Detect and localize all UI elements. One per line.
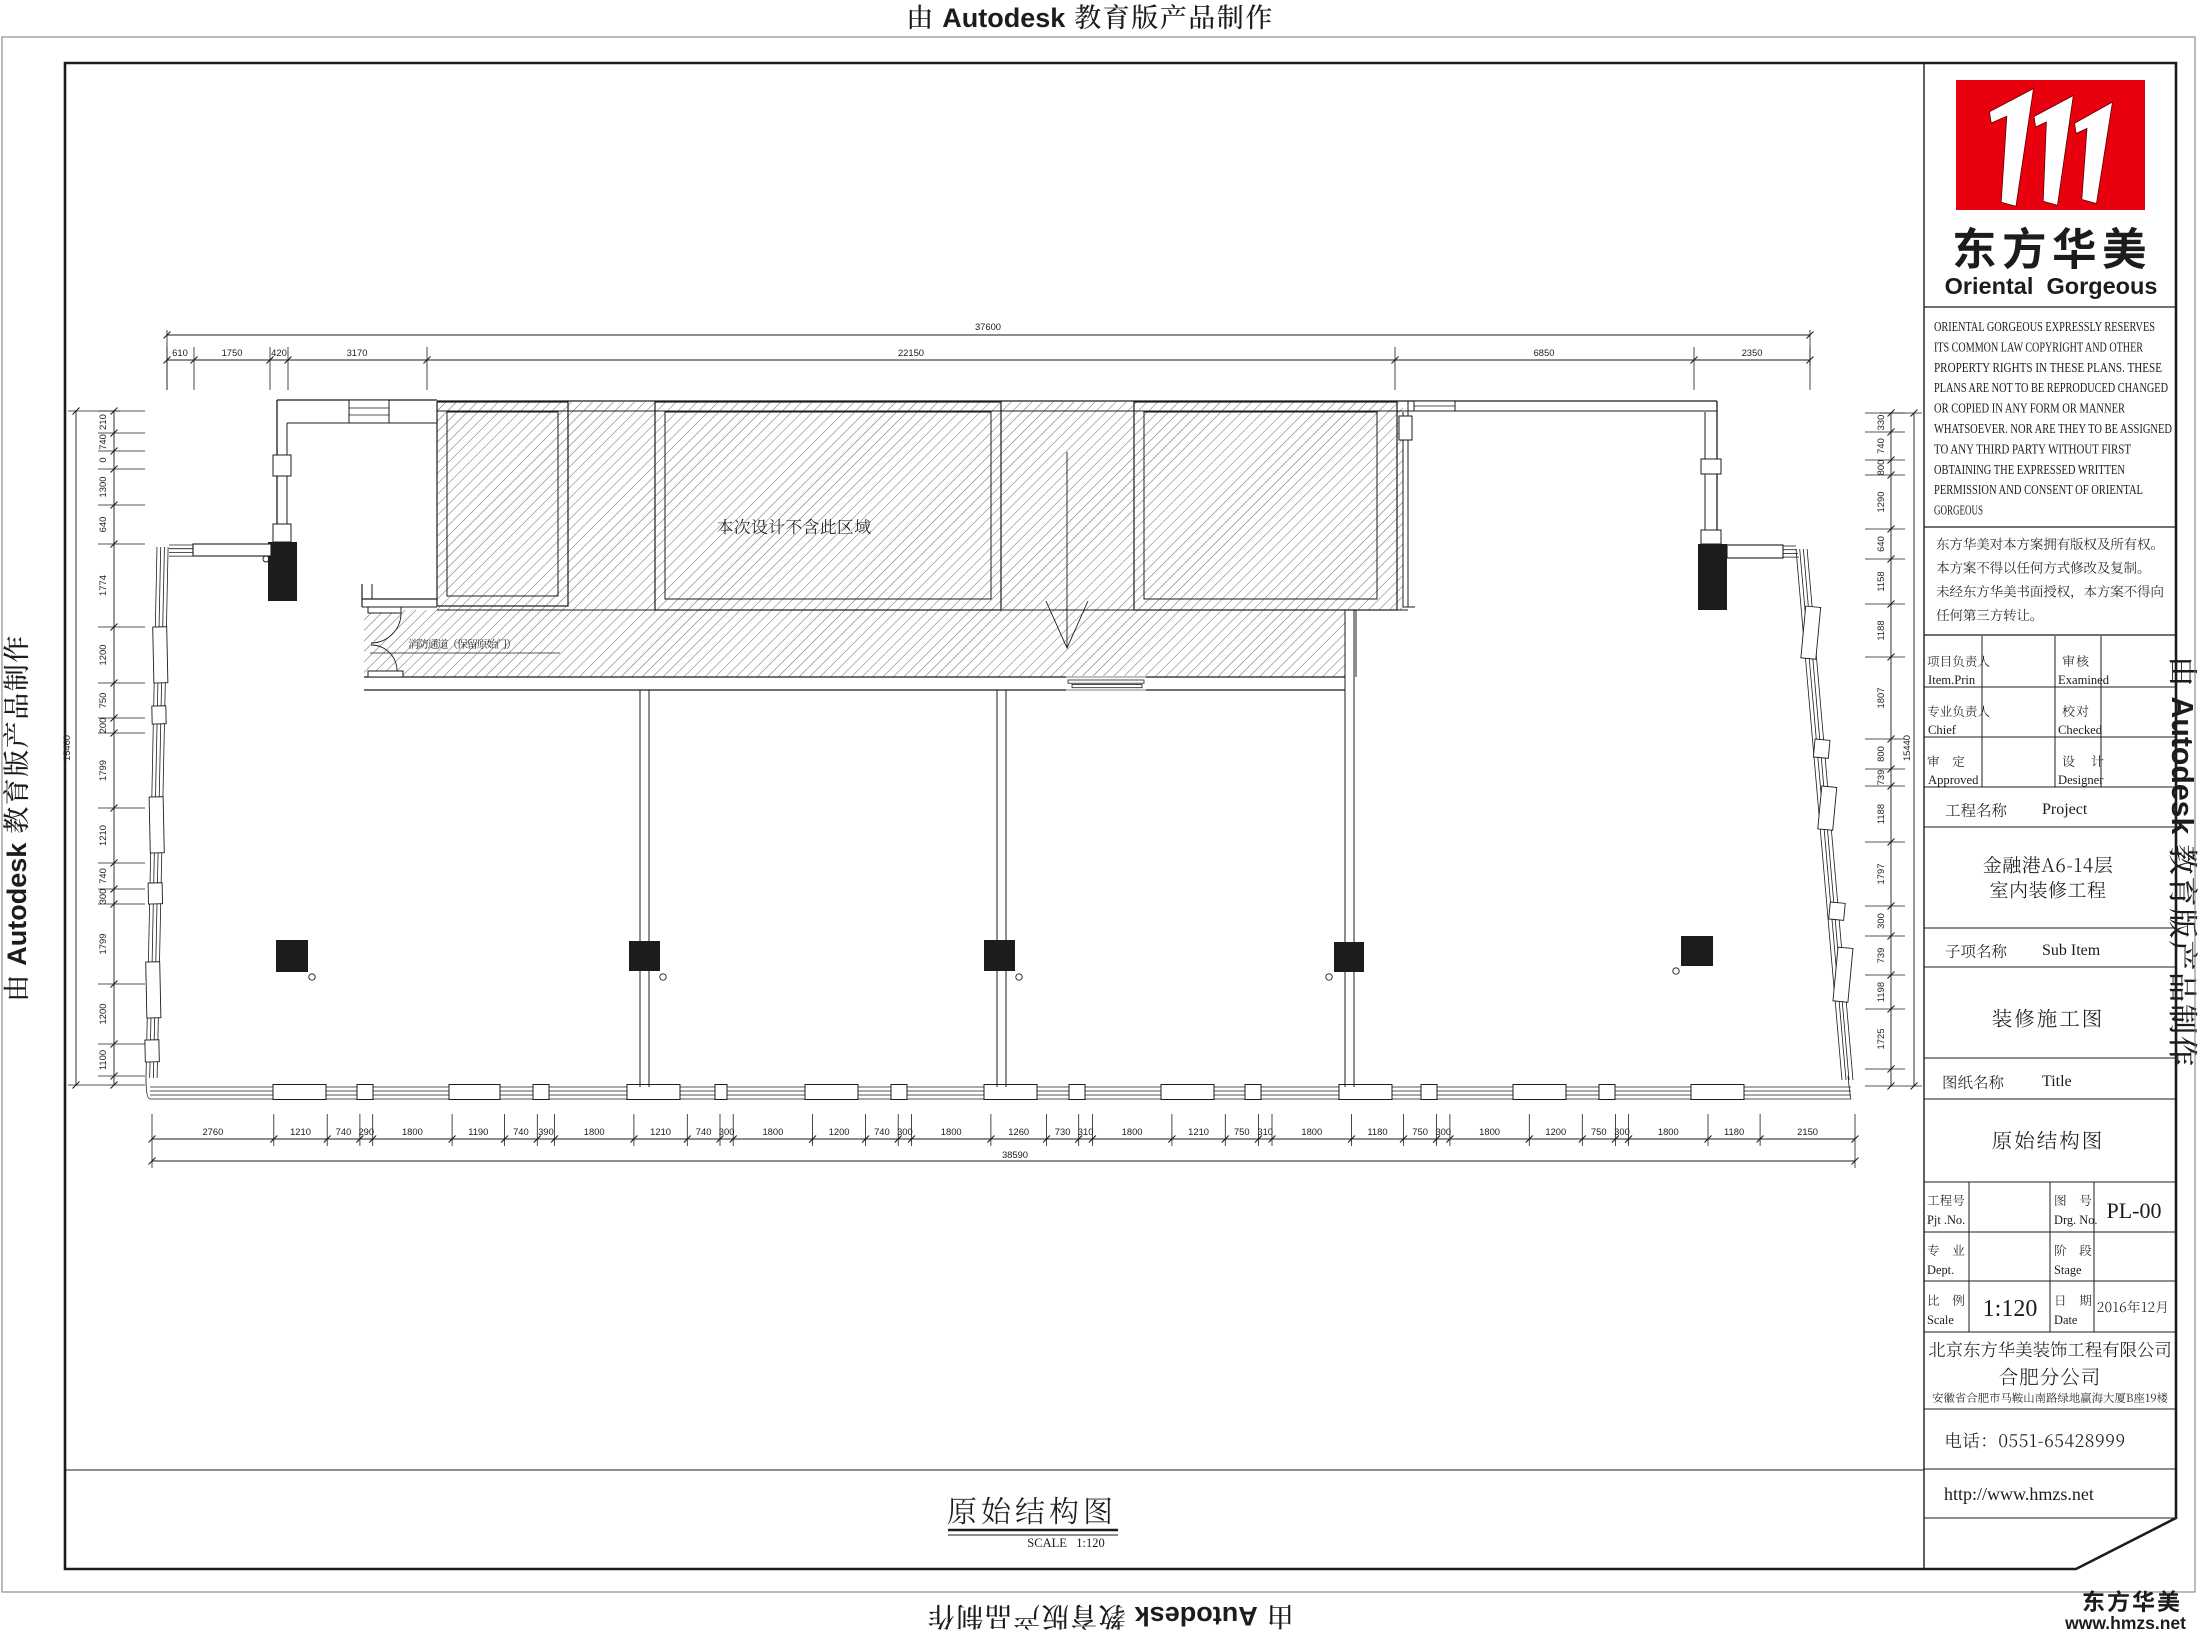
svg-text:300: 300 — [1614, 1126, 1630, 1137]
svg-text:Approved: Approved — [1928, 773, 1979, 787]
svg-text:300: 300 — [97, 889, 108, 905]
svg-text:1800: 1800 — [762, 1126, 783, 1137]
svg-text:Item.Prin: Item.Prin — [1928, 673, 1976, 687]
svg-text:2150: 2150 — [1797, 1126, 1818, 1137]
svg-text:6850: 6850 — [1534, 347, 1555, 358]
svg-text:640: 640 — [1875, 536, 1886, 552]
svg-text:210: 210 — [97, 414, 108, 430]
svg-text:Stage: Stage — [2054, 1263, 2082, 1277]
svg-text:739: 739 — [1875, 770, 1886, 786]
svg-text:Drg. No.: Drg. No. — [2054, 1213, 2097, 1227]
svg-text:1210: 1210 — [1188, 1126, 1209, 1137]
svg-text:740: 740 — [336, 1126, 352, 1137]
svg-text:Project: Project — [2042, 801, 2088, 818]
svg-text:WHATSOEVER. NOR ARE THEY TO BE: WHATSOEVER. NOR ARE THEY TO BE ASSIGNED — [1934, 421, 2172, 436]
svg-text:1210: 1210 — [650, 1126, 671, 1137]
svg-text:1190: 1190 — [468, 1126, 488, 1137]
svg-text:740: 740 — [513, 1126, 529, 1137]
svg-text:290: 290 — [358, 1126, 374, 1137]
svg-text:1725: 1725 — [1875, 1029, 1886, 1050]
svg-text:1260: 1260 — [1008, 1126, 1029, 1137]
svg-text:0: 0 — [97, 457, 108, 462]
svg-text:Designer: Designer — [2058, 773, 2104, 787]
svg-text:Chief: Chief — [1928, 723, 1957, 737]
svg-text:3170: 3170 — [347, 347, 368, 358]
svg-text:1807: 1807 — [1875, 688, 1886, 709]
svg-text:1300: 1300 — [97, 477, 108, 498]
svg-text:750: 750 — [97, 693, 108, 709]
svg-text:300: 300 — [897, 1126, 913, 1137]
svg-text:1200: 1200 — [829, 1126, 850, 1137]
svg-text:1210: 1210 — [97, 825, 108, 846]
svg-text:420: 420 — [271, 347, 287, 358]
svg-text:1180: 1180 — [1724, 1126, 1744, 1137]
svg-text:TO ANY THIRD PARTY WITHOUT FIR: TO ANY THIRD PARTY WITHOUT FIRST — [1934, 441, 2131, 456]
svg-text:Examined: Examined — [2058, 673, 2110, 687]
svg-text:800: 800 — [1875, 746, 1886, 762]
svg-text:Oriental Gorgeous: Oriental Gorgeous — [1945, 273, 2158, 299]
svg-text:1800: 1800 — [584, 1126, 605, 1137]
svg-text:750: 750 — [1234, 1126, 1250, 1137]
svg-text:1188: 1188 — [1875, 804, 1886, 824]
svg-text:300: 300 — [1875, 913, 1886, 929]
svg-text:610: 610 — [172, 347, 188, 358]
svg-text:1800: 1800 — [941, 1126, 962, 1137]
svg-text:Scale: Scale — [1927, 1313, 1954, 1327]
svg-text:739: 739 — [1875, 948, 1886, 964]
svg-text:Dept.: Dept. — [1927, 1263, 1954, 1277]
svg-text:37600: 37600 — [975, 321, 1001, 332]
svg-text:730: 730 — [1055, 1126, 1071, 1137]
svg-text:15460: 15460 — [61, 735, 72, 761]
svg-text:Sub Item: Sub Item — [2042, 942, 2101, 959]
svg-text:390: 390 — [538, 1126, 554, 1137]
svg-text:1158: 1158 — [1875, 571, 1886, 591]
svg-text:740: 740 — [97, 868, 108, 884]
svg-text:SCALE 1:120: SCALE 1:120 — [1027, 1536, 1104, 1550]
svg-text:1200: 1200 — [97, 1004, 108, 1025]
svg-text:750: 750 — [1591, 1126, 1607, 1137]
svg-text:1188: 1188 — [1875, 620, 1886, 640]
svg-text:1198: 1198 — [1875, 982, 1886, 1002]
svg-text:1100: 1100 — [97, 1050, 108, 1070]
svg-text:1290: 1290 — [1875, 492, 1886, 513]
svg-text:1750: 1750 — [222, 347, 243, 358]
svg-text:1800: 1800 — [1301, 1126, 1322, 1137]
svg-text:310: 310 — [1257, 1126, 1273, 1137]
svg-text:740: 740 — [874, 1126, 890, 1137]
svg-text:PROPERTY RIGHTS IN THESE PLANS: PROPERTY RIGHTS IN THESE PLANS. THESE — [1934, 360, 2162, 375]
svg-text:OBTAINING THE EXPRESSED WRITTE: OBTAINING THE EXPRESSED WRITTEN — [1934, 462, 2125, 477]
svg-text:1200: 1200 — [1545, 1126, 1566, 1137]
svg-text:1200: 1200 — [97, 645, 108, 666]
svg-text:Date: Date — [2054, 1313, 2078, 1327]
svg-text:1180: 1180 — [1367, 1126, 1387, 1137]
svg-text:PERMISSION AND CONSENT OF ORIE: PERMISSION AND CONSENT OF ORIENTAL — [1934, 482, 2143, 497]
svg-text:1799: 1799 — [97, 760, 108, 781]
svg-text:310: 310 — [1078, 1126, 1094, 1137]
svg-text:1800: 1800 — [1479, 1126, 1500, 1137]
svg-text:1800: 1800 — [1658, 1126, 1679, 1137]
svg-text:ORIENTAL GORGEOUS EXPRESSLY RE: ORIENTAL GORGEOUS EXPRESSLY RESERVES — [1934, 319, 2155, 334]
svg-text:740: 740 — [1875, 438, 1886, 454]
svg-text:22150: 22150 — [898, 347, 924, 358]
svg-text:1774: 1774 — [97, 575, 108, 596]
svg-text:300: 300 — [719, 1126, 735, 1137]
svg-text:Pjt .No.: Pjt .No. — [1927, 1213, 1965, 1227]
svg-text:PL-00: PL-00 — [2107, 1198, 2162, 1223]
svg-text:Title: Title — [2042, 1073, 2072, 1090]
svg-text:2350: 2350 — [1742, 347, 1763, 358]
svg-text:640: 640 — [97, 517, 108, 533]
svg-text:GORGEOUS: GORGEOUS — [1934, 503, 1983, 518]
svg-text:330: 330 — [1875, 415, 1886, 431]
svg-text:1800: 1800 — [402, 1126, 423, 1137]
svg-text:1800: 1800 — [1122, 1126, 1143, 1137]
svg-text:ITS COMMON LAW COPYRIGHT AND O: ITS COMMON LAW COPYRIGHT AND OTHER — [1934, 339, 2143, 354]
svg-text:1799: 1799 — [97, 934, 108, 955]
svg-text:http://www.hmzs.net: http://www.hmzs.net — [1944, 1484, 2094, 1504]
svg-text:1:120: 1:120 — [1983, 1296, 2038, 1322]
svg-text:Checked: Checked — [2058, 723, 2103, 737]
svg-text:740: 740 — [696, 1126, 712, 1137]
svg-text:38590: 38590 — [1002, 1149, 1028, 1160]
svg-text:300: 300 — [1435, 1126, 1451, 1137]
svg-text:750: 750 — [1412, 1126, 1428, 1137]
svg-text:www.hmzs.net: www.hmzs.net — [2064, 1613, 2186, 1632]
svg-text:800: 800 — [1875, 460, 1886, 476]
svg-text:OR COPIED IN ANY FORM OR MANNE: OR COPIED IN ANY FORM OR MANNER — [1934, 401, 2125, 416]
svg-text:1210: 1210 — [290, 1126, 311, 1137]
svg-text:PLANS ARE NOT TO BE REPRODUCED: PLANS ARE NOT TO BE REPRODUCED CHANGED — [1934, 380, 2168, 395]
svg-text:200: 200 — [97, 718, 108, 734]
svg-text:1797: 1797 — [1875, 864, 1886, 885]
svg-text:15440: 15440 — [1901, 735, 1912, 761]
svg-text:740: 740 — [97, 434, 108, 450]
svg-text:2760: 2760 — [202, 1126, 223, 1137]
